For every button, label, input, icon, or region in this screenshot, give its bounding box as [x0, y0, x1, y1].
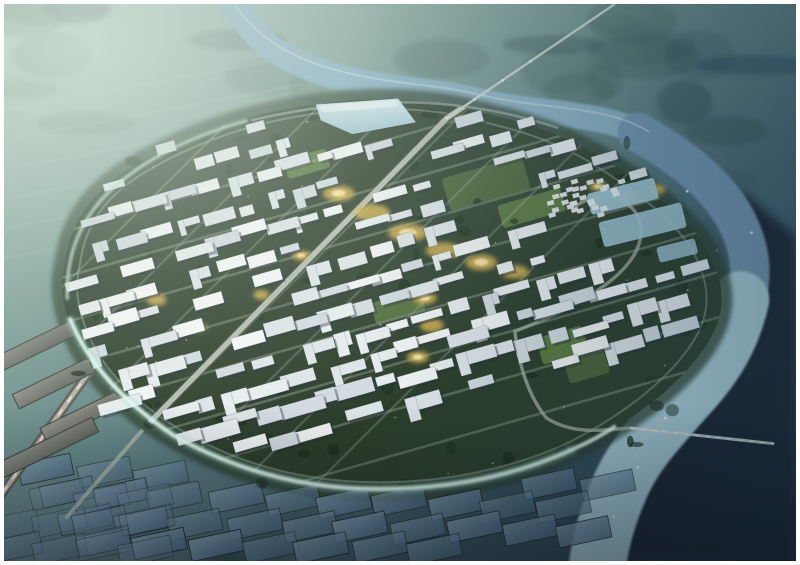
image-frame — [0, 0, 800, 565]
atmosphere-overlays — [4, 4, 796, 561]
aerial-city-rendering — [4, 4, 796, 561]
scene-box — [4, 4, 796, 561]
bottom-vignette — [4, 4, 796, 561]
